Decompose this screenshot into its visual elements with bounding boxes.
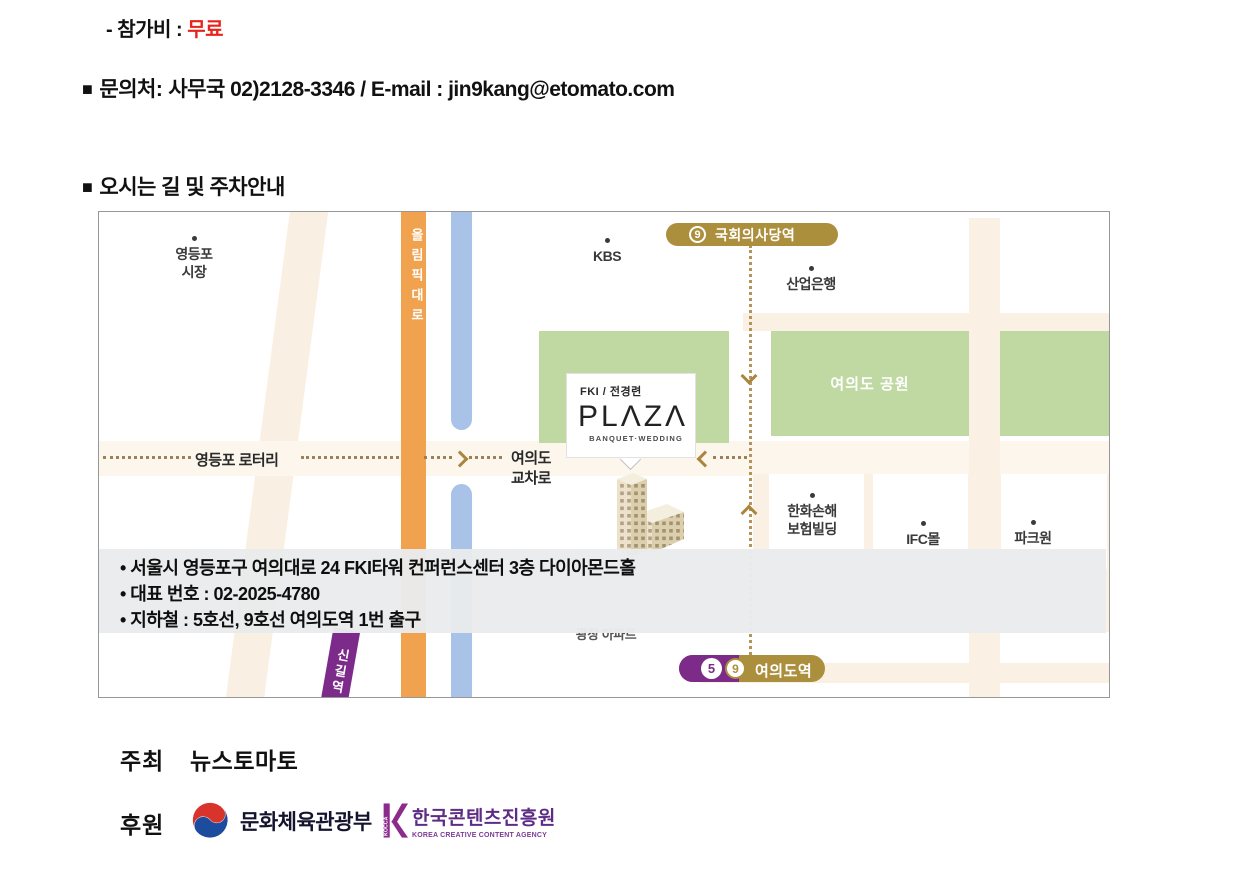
line5-circle-icon: 5 (701, 658, 722, 679)
yeouido-park-block: 여의도 공원 (771, 331, 969, 436)
dotted-road-center-1 (424, 456, 452, 459)
label-line: 산업은행 (771, 275, 851, 293)
park-block-east (1000, 331, 1110, 436)
kocca-subtitle: KOREA CREATIVE CONTENT AGENCY (412, 832, 572, 839)
singil-station-ribbon: 신길역 (319, 627, 360, 698)
dotted-road-west-1 (103, 456, 191, 459)
cross-road-top (743, 313, 1110, 331)
label-line: KBS (567, 247, 647, 265)
map-dot-icon (192, 236, 197, 241)
address-info-box: • 서울시 영등포구 여의대로 24 FKI타워 컨퍼런스센터 3층 다이아몬드… (99, 549, 1106, 633)
fee-line: - 참가비 : 무료 (106, 13, 223, 42)
dotted-road-east (713, 456, 747, 459)
place-kbs: KBS (567, 238, 647, 265)
kocca-k-label: KOCCA (384, 816, 390, 836)
contact-label: 문의처: (99, 78, 162, 101)
venue-callout-box: FKI / 전경련 PLΛZΛ BANQUET·WEDDING (566, 373, 696, 458)
label-line: 한화손해 (772, 502, 852, 520)
phone-line: • 대표 번호 : 02-2025-4780 (120, 581, 1106, 607)
host-name: 뉴스토마토 (190, 742, 298, 776)
square-bullet-icon: ■ (82, 79, 92, 99)
label-line: 보험빌딩 (772, 520, 852, 538)
line9-circle-icon: 9 (689, 226, 706, 243)
map-dot-icon (1031, 520, 1036, 525)
map-dot-icon (921, 521, 926, 526)
yeouido-intersection-line1: 여의도 (503, 449, 559, 469)
subway-line: • 지하철 : 5호선, 9호선 여의도역 1번 출구 (120, 607, 1106, 633)
square-bullet-icon: ■ (82, 177, 92, 197)
dotted-road-west-2 (301, 456, 399, 459)
flyer-page: { "header": { "fee_prefix": "- 참가비 : ", … (0, 0, 1240, 893)
yeouido-intersection-label: 여의도 교차로 (503, 449, 559, 489)
label-line: 시장 (154, 263, 234, 281)
national-assembly-station-badge: 9 국회의사당역 (666, 223, 838, 246)
place-industrial-bank: 산업은행 (771, 266, 851, 293)
place-ifc-mall: IFC몰 (883, 521, 963, 548)
yeouido-station-badge: 5 9 여의도역 (679, 655, 825, 682)
label-line: 파크원 (993, 529, 1073, 547)
host-label: 주최 (120, 742, 164, 776)
directions-title: ■오시는 길 및 주차안내 (82, 171, 285, 201)
label-line: 영등포 (154, 245, 234, 263)
yeouido-intersection-line2: 교차로 (503, 469, 559, 489)
line9-circle-icon: 9 (725, 658, 746, 679)
place-yeongdeungpo-market: 영등포 시장 (154, 236, 234, 281)
yeongdeungpo-rotary-label: 영등포 로터리 (195, 449, 278, 470)
address-line: • 서울시 영등포구 여의대로 24 FKI타워 컨퍼런스센터 3층 다이아몬드… (120, 555, 1106, 581)
fee-prefix: - 참가비 : (106, 19, 187, 41)
kocca-wordmark: 한국콘텐츠진흥원 KOREA CREATIVE CONTENT AGENCY (412, 803, 572, 839)
dotted-road-center-2 (469, 456, 502, 459)
kocca-name: 한국콘텐츠진흥원 (412, 803, 572, 830)
river-stripe-upper (451, 212, 472, 430)
station-name: 여의도역 (755, 660, 812, 681)
mcst-taegeuk-icon (188, 798, 232, 842)
place-park-one: 파크원 (993, 520, 1073, 547)
sponsor-label: 후원 (120, 806, 164, 840)
map-dot-icon (605, 238, 610, 243)
olympic-expressway-label: 올림픽대로 (401, 228, 426, 328)
chevron-down-icon (741, 368, 758, 385)
contact-line: ■문의처:사무국 02)2128-3346 / E-mail : jin9kan… (82, 73, 674, 103)
station-name: 국회의사당역 (715, 225, 795, 245)
map-dot-icon (809, 266, 814, 271)
location-map: 여의도 공원 올림픽대로 영등포 로터리 여의도 교차로 영등포 시장 KBS … (98, 211, 1110, 698)
yeouido-park-label: 여의도 공원 (830, 373, 909, 394)
label-line: IFC몰 (883, 530, 963, 548)
directions-title-text: 오시는 길 및 주차안내 (99, 176, 284, 199)
venue-brand-top: FKI / 전경련 (580, 383, 695, 399)
place-hanwha-building: 한화손해 보험빌딩 (772, 493, 852, 538)
kocca-k-icon: KOCCA (382, 799, 408, 842)
venue-brand-sub: BANQUET·WEDDING (567, 434, 683, 443)
fki-tower-illustration (591, 467, 691, 562)
mcst-name: 문화체육관광부 (240, 806, 372, 836)
venue-brand-name: PLΛZΛ (578, 401, 695, 433)
map-dot-icon (810, 493, 815, 498)
contact-detail: 사무국 02)2128-3346 / E-mail : jin9kang@eto… (168, 78, 674, 101)
fee-value: 무료 (187, 19, 223, 41)
